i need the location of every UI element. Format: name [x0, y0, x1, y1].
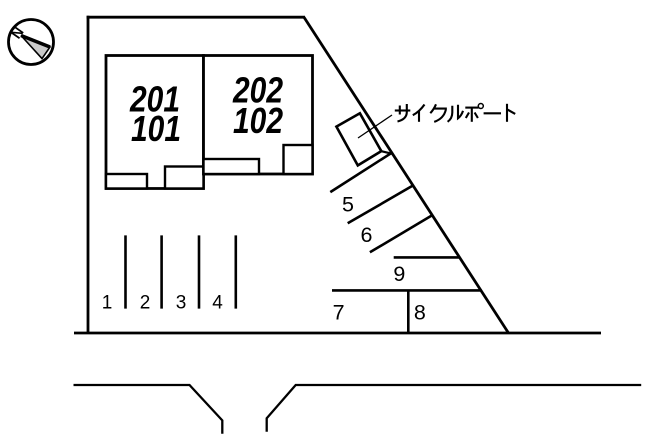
svg-text:3: 3	[176, 293, 187, 314]
svg-text:101: 101	[131, 108, 181, 149]
svg-text:5: 5	[342, 192, 354, 216]
svg-text:1: 1	[102, 293, 113, 314]
svg-text:7: 7	[333, 301, 345, 325]
svg-text:8: 8	[414, 301, 426, 325]
svg-text:102: 102	[233, 100, 283, 141]
svg-text:6: 6	[361, 223, 373, 247]
svg-text:2: 2	[140, 293, 151, 314]
svg-text:4: 4	[212, 293, 223, 314]
svg-text:9: 9	[393, 262, 405, 286]
